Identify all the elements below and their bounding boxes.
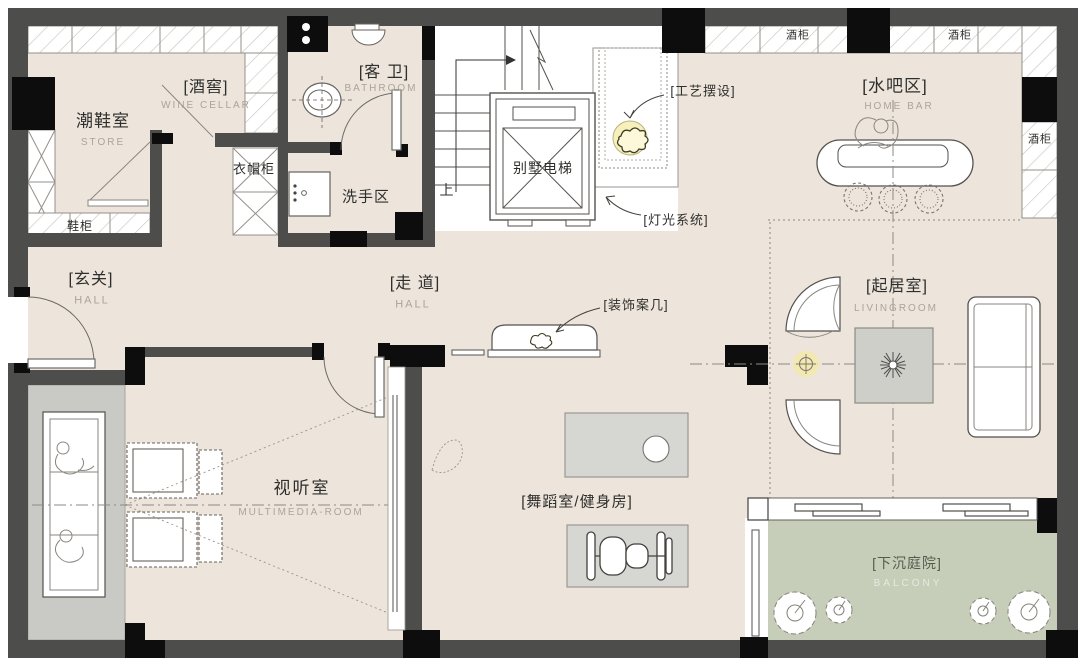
annotation-lighting-system: [灯光系统] (643, 214, 708, 227)
room-label-bathroom-cn: [客 卫] (359, 65, 409, 81)
room-label-living-en: LIVINGROOM (854, 304, 938, 314)
basin-dot (302, 36, 310, 44)
room-label-store-en: STORE (81, 138, 125, 148)
room-label-bathroom-en: BATHROOM (344, 84, 417, 94)
room-label-wine-cellar-cn: [酒窖] (184, 80, 229, 96)
wash-area-fixtures (289, 172, 330, 216)
room-label-bar-en: HOME BAR (864, 102, 933, 112)
room-label-corridor-en: HALL (395, 300, 431, 311)
room-label-wash-area: 洗手区 (342, 190, 390, 205)
room-label-multimedia-en: MULTIMEDIA-ROOM (238, 508, 363, 518)
cabinet-label-wardrobe: 衣帽柜 (233, 163, 275, 176)
floor-plan: 潮鞋室 STORE [酒窖] WINE CELLAR [客 卫] BATHROO… (0, 0, 1080, 661)
room-label-corridor-cn: [走 道] (390, 276, 440, 292)
room-label-courtyard-en: BALCONY (874, 579, 943, 589)
room-label-entry-cn: [玄关] (69, 272, 114, 288)
craft-display-zone (593, 48, 678, 187)
cabinet-label-wine-right: 酒柜 (1028, 135, 1052, 146)
room-label-wine-cellar-en: WINE CELLAR (161, 101, 251, 111)
cabinet-label-wine-top-left: 酒柜 (786, 31, 810, 42)
elevator-label: 别墅电梯 (513, 161, 573, 175)
room-label-store-cn: 潮鞋室 (76, 113, 130, 130)
room-label-living-cn: [起居室] (866, 279, 928, 295)
annotation-craft-display: [工艺摆设] (670, 85, 735, 98)
entry-door-opening (8, 297, 28, 363)
room-label-bar-cn: [水吧区] (862, 78, 927, 95)
cabinet-label-shoe: 鞋柜 (67, 220, 93, 232)
room-label-multimedia-cn: 视听室 (274, 480, 331, 497)
cabinet-label-wine-top-right: 酒柜 (948, 31, 972, 42)
annotation-console-table: [装饰案几] (603, 299, 668, 312)
room-label-courtyard-cn: [下沉庭院] (872, 556, 942, 570)
basin-dot (302, 23, 310, 31)
stairs-up-label: 上 (440, 183, 455, 197)
room-label-entry-en: HALL (74, 296, 110, 307)
room-label-gym: [舞蹈室/健身房] (521, 495, 633, 510)
